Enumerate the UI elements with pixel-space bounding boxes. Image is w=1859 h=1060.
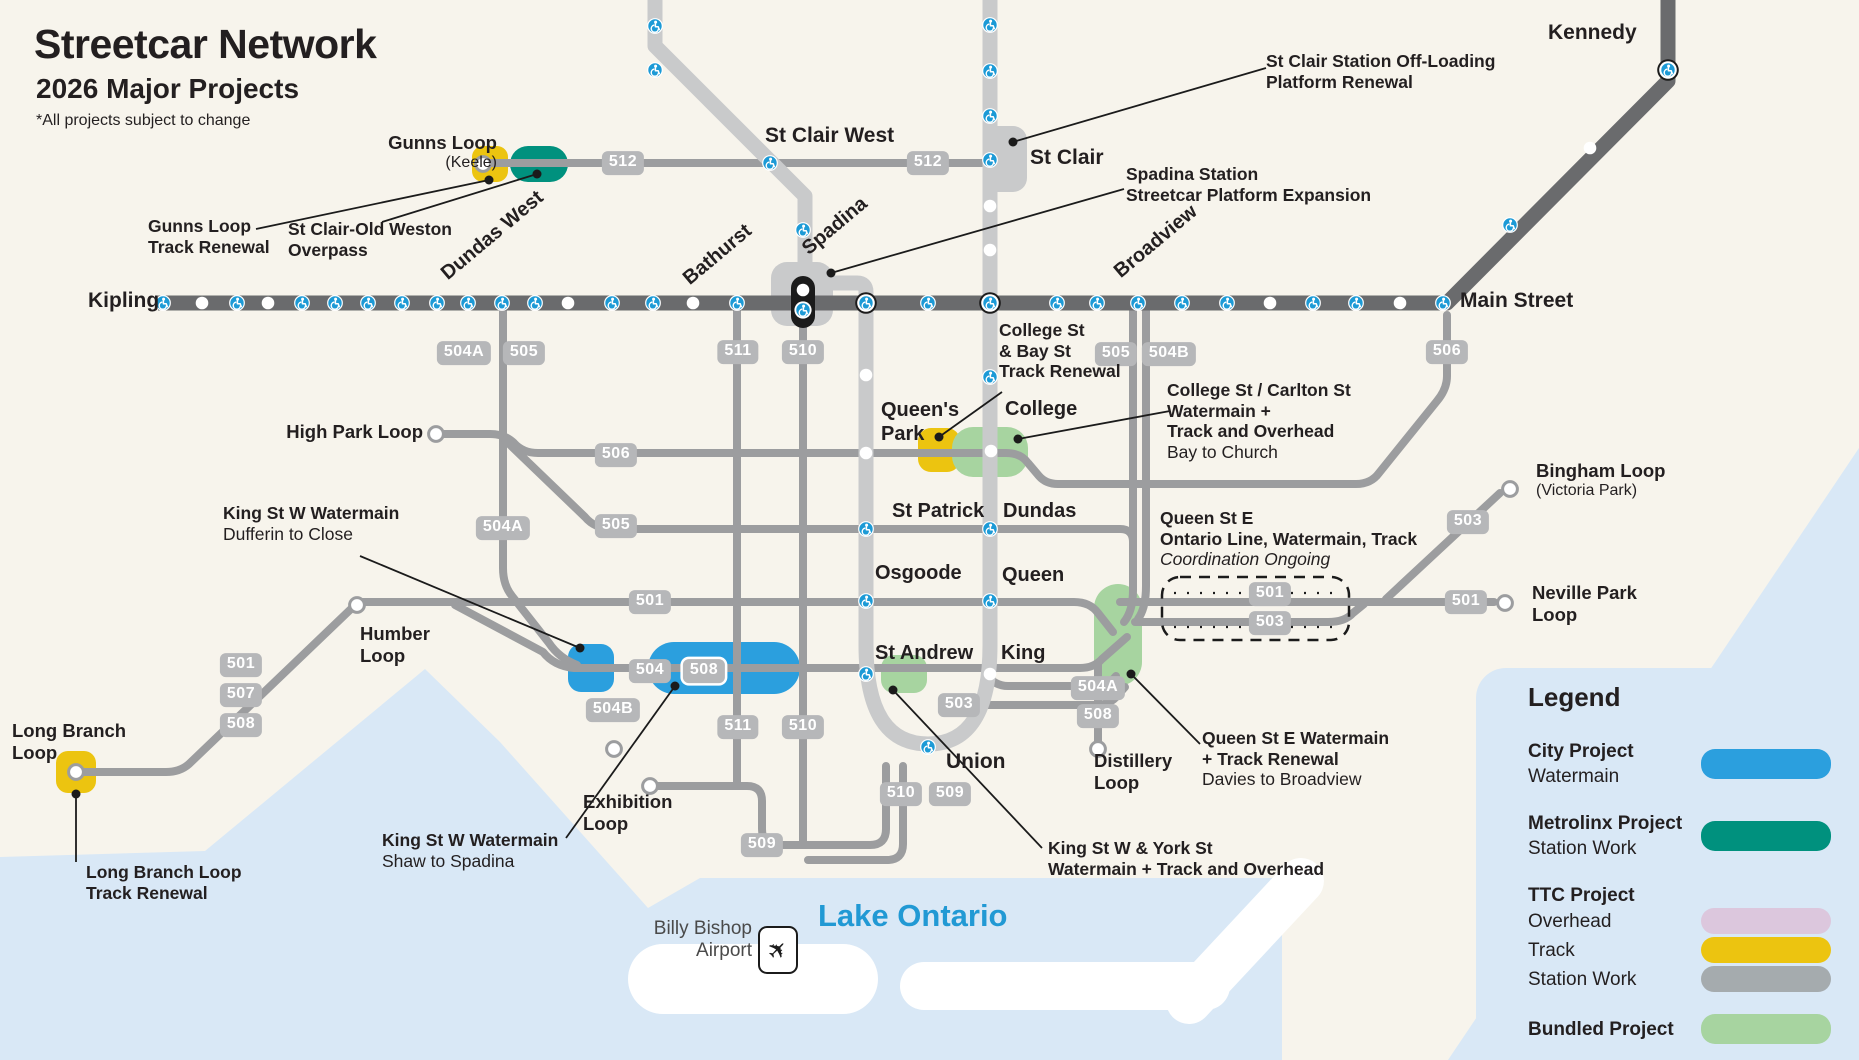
college-carlton-watermain-line-3: Bay to Church (1167, 442, 1351, 463)
badge-503-bingham: 503 (1447, 510, 1489, 534)
spadina-station-expansion-line-1: Streetcar Platform Expansion (1126, 185, 1371, 206)
badge-503-dashed: 503 (1249, 611, 1291, 635)
badge-504a-west: 504A (476, 516, 530, 540)
badge-511-north: 511 (717, 340, 758, 364)
king-label-line-0: King (1001, 642, 1045, 666)
badge-501-dashed: 501 (1249, 582, 1291, 606)
map-title: Streetcar Network (34, 20, 376, 68)
st-clair-offloading: St Clair Station Off-LoadingPlatform Ren… (1266, 51, 1495, 92)
badge-508-king: 508 (683, 659, 725, 683)
legend-bundled-project: Bundled Project (1528, 1017, 1674, 1042)
billy-bishop-label-line-1: Airport (654, 940, 752, 962)
st-clair-west-label-line-0: St Clair West (765, 124, 894, 149)
airport-icon: ✈ (758, 926, 798, 974)
union-label: Union (946, 750, 1005, 775)
college-bay-track-renewal-line-0: College St (999, 320, 1121, 341)
queen-label-line-0: Queen (1002, 564, 1064, 588)
college-bay-track-renewal: College St& Bay StTrack Renewal (999, 320, 1121, 382)
badge-508-lakeshore: 508 (220, 713, 262, 737)
map-title-line-0: Streetcar Network (34, 20, 376, 68)
gunns-loop-track-renewal-line-1: Track Renewal (148, 237, 270, 258)
legend-panel: Legend City Project Watermain Metrolinx … (1476, 668, 1859, 1060)
neville-park-loop-label: Neville ParkLoop (1532, 582, 1637, 626)
king-york-watermain: King St W & York StWatermain + Track and… (1048, 838, 1324, 879)
kipling-label: Kipling (88, 289, 159, 314)
dundas-label-line-0: Dundas (1003, 500, 1076, 524)
gunns-loop-label: Gunns Loop(Keele) (388, 132, 497, 173)
legend-metrolinx-project: Metrolinx Project Station Work (1528, 811, 1682, 861)
legend-title: Legend (1528, 682, 1831, 713)
king-w-watermain-dufferin-line-1: Dufferin to Close (223, 524, 399, 545)
long-branch-track-renewal-line-1: Track Renewal (86, 883, 242, 904)
legend-swatch-metrolinx (1701, 821, 1831, 851)
streetcar-network-map: Legend City Project Watermain Metrolinx … (0, 0, 1859, 1060)
humber-loop-label-line-1: Loop (360, 645, 430, 667)
gunns-loop-track-renewal: Gunns LoopTrack Renewal (148, 216, 270, 257)
kennedy-label: Kennedy (1548, 21, 1637, 46)
badge-505-west: 505 (595, 514, 637, 538)
osgoode-label: Osgoode (875, 562, 962, 586)
queen-label: Queen (1002, 564, 1064, 588)
queen-st-e-ontario-line-line-1: Ontario Line, Watermain, Track (1160, 529, 1417, 550)
badge-501-lakeshore: 501 (220, 653, 262, 677)
st-patrick-label-line-0: St Patrick (892, 500, 984, 524)
st-clair-offloading-line-1: Platform Renewal (1266, 72, 1495, 93)
distillery-loop-label-line-0: Distillery (1094, 750, 1172, 772)
badge-512-west: 512 (602, 151, 644, 175)
queens-park-label-line-0: Queen's (881, 399, 959, 423)
bingham-loop-label-line-1: (Victoria Park) (1536, 482, 1665, 501)
spadina-station-expansion-line-0: Spadina Station (1126, 164, 1371, 185)
badge-504b-east: 504B (1142, 342, 1196, 366)
queen-e-watermain-track-line-2: Davies to Broadview (1202, 769, 1389, 790)
exhibition-loop-label-line-0: Exhibition (583, 791, 672, 813)
dundas-label: Dundas (1003, 500, 1076, 524)
main-street-label: Main Street (1460, 289, 1573, 314)
neville-park-loop-label-line-0: Neville Park (1532, 582, 1637, 604)
humber-loop-label-line-0: Humber (360, 623, 430, 645)
college-carlton-watermain: College St / Carlton StWatermain +Track … (1167, 380, 1351, 463)
badge-503-king: 503 (938, 693, 980, 717)
st-clair-west-label: St Clair West (765, 124, 894, 149)
legend-swatch-station-work (1701, 966, 1831, 992)
king-w-watermain-shaw: King St W WatermainShaw to Spadina (382, 830, 558, 871)
badge-506-east: 506 (1426, 340, 1468, 364)
badge-501-neville: 501 (1445, 590, 1487, 614)
college-bay-track-renewal-line-1: & Bay St (999, 341, 1121, 362)
exhibition-loop-label-line-1: Loop (583, 813, 672, 835)
queen-e-watermain-track-line-0: Queen St E Watermain (1202, 728, 1389, 749)
kennedy-label-line-0: Kennedy (1548, 21, 1637, 46)
badge-509-west: 509 (741, 833, 783, 857)
distillery-loop-label: DistilleryLoop (1094, 750, 1172, 794)
subway-line-1 (655, 0, 990, 744)
badge-510-north: 510 (782, 340, 824, 364)
long-branch-track-renewal: Long Branch LoopTrack Renewal (86, 862, 242, 903)
spadina-station-expansion: Spadina StationStreetcar Platform Expans… (1126, 164, 1371, 205)
high-park-loop-label: High Park Loop (286, 421, 423, 443)
badge-512-east: 512 (907, 151, 949, 175)
map-subtitle: 2026 Major Projects (36, 72, 299, 105)
college-label-line-0: College (1005, 398, 1077, 422)
osgoode-label-line-0: Osgoode (875, 562, 962, 586)
st-clair-offloading-line-0: St Clair Station Off-Loading (1266, 51, 1495, 72)
map-note-line-0: *All projects subject to change (36, 112, 250, 131)
badge-508-distillery: 508 (1077, 704, 1119, 728)
long-branch-loop-label: Long BranchLoop (12, 720, 126, 764)
annotation-leaders (72, 68, 1267, 862)
college-carlton-watermain-line-1: Watermain + (1167, 401, 1351, 422)
long-branch-loop-label-line-1: Loop (12, 742, 126, 764)
st-clair-old-weston-overpass: St Clair-Old WestonOverpass (288, 219, 452, 260)
long-branch-track-renewal-line-0: Long Branch Loop (86, 862, 242, 883)
badge-504a-distillery: 504A (1071, 676, 1125, 700)
airplane-glyph: ✈ (761, 933, 796, 968)
legend-swatch-overhead (1701, 908, 1831, 934)
long-branch-loop-label-line-0: Long Branch (12, 720, 126, 742)
st-clair-label-line-0: St Clair (1030, 146, 1104, 171)
queen-st-e-ontario-line-line-2: Coordination Ongoing (1160, 549, 1417, 570)
gunns-loop-label-line-0: Gunns Loop (388, 132, 497, 154)
badge-504a-north: 504A (437, 341, 491, 365)
bingham-loop-label: Bingham Loop(Victoria Park) (1536, 460, 1665, 501)
college-bay-track-renewal-line-2: Track Renewal (999, 361, 1121, 382)
badge-510-union: 510 (880, 782, 922, 806)
king-label: King (1001, 642, 1045, 666)
badge-510-south: 510 (782, 715, 824, 739)
neville-park-loop-label-line-1: Loop (1532, 604, 1637, 626)
bingham-loop-label-line-0: Bingham Loop (1536, 460, 1665, 482)
badge-504-king: 504 (629, 659, 671, 683)
gunns-loop-label-line-1: (Keele) (388, 154, 497, 173)
legend-ttc-project: TTC Project Overhead Track Station Work (1528, 883, 1831, 992)
main-street-label-line-0: Main Street (1460, 289, 1573, 314)
exhibition-loop-label: ExhibitionLoop (583, 791, 672, 835)
line1-yonge-university (832, 0, 990, 744)
lake-ontario-label: Lake Ontario (818, 898, 1008, 935)
kipling-label-line-0: Kipling (88, 289, 159, 314)
king-w-watermain-shaw-line-0: King St W Watermain (382, 830, 558, 851)
badge-507-lakeshore: 507 (220, 683, 262, 707)
legend-swatch-bundled (1701, 1014, 1831, 1044)
king-york-watermain-line-1: Watermain + Track and Overhead (1048, 859, 1324, 880)
king-w-watermain-dufferin: King St W WatermainDufferin to Close (223, 503, 399, 544)
badge-501-queen: 501 (629, 590, 671, 614)
king-w-watermain-shaw-line-1: Shaw to Spadina (382, 851, 558, 872)
badge-504b-south: 504B (586, 698, 640, 722)
st-clair-old-weston-overpass-line-0: St Clair-Old Weston (288, 219, 452, 240)
queens-park-label: Queen'sPark (881, 399, 959, 446)
lake-ontario-label-line-0: Lake Ontario (818, 898, 1008, 935)
queen-st-e-ontario-line-line-0: Queen St E (1160, 508, 1417, 529)
st-andrew-label: St Andrew (875, 642, 973, 666)
college-label: College (1005, 398, 1077, 422)
king-w-watermain-dufferin-line-0: King St W Watermain (223, 503, 399, 524)
queen-st-e-ontario-line: Queen St EOntario Line, Watermain, Track… (1160, 508, 1417, 570)
badge-509-union: 509 (929, 782, 971, 806)
college-carlton-watermain-line-0: College St / Carlton St (1167, 380, 1351, 401)
st-clair-label: St Clair (1030, 146, 1104, 171)
college-carlton-watermain-line-2: Track and Overhead (1167, 421, 1351, 442)
st-clair-old-weston-overpass-line-1: Overpass (288, 240, 452, 261)
high-park-loop-label-line-0: High Park Loop (286, 421, 423, 443)
badge-506-west: 506 (595, 443, 637, 467)
badge-505-north: 505 (503, 341, 545, 365)
map-subtitle-line-0: 2026 Major Projects (36, 72, 299, 105)
queen-e-watermain-track: Queen St E Watermain+ Track RenewalDavie… (1202, 728, 1389, 790)
map-note: *All projects subject to change (36, 112, 250, 131)
st-patrick-label: St Patrick (892, 500, 984, 524)
humber-loop-label: HumberLoop (360, 623, 430, 667)
queen-e-watermain-track-line-1: + Track Renewal (1202, 749, 1389, 770)
distillery-loop-label-line-1: Loop (1094, 772, 1172, 794)
gunns-loop-track-renewal-line-0: Gunns Loop (148, 216, 270, 237)
union-label-line-0: Union (946, 750, 1005, 775)
queens-park-label-line-1: Park (881, 423, 959, 447)
legend-swatch-watermain (1701, 749, 1831, 779)
billy-bishop-label: Billy BishopAirport (654, 918, 752, 963)
st-andrew-label-line-0: St Andrew (875, 642, 973, 666)
king-york-watermain-line-0: King St W & York St (1048, 838, 1324, 859)
badge-511-south: 511 (717, 715, 758, 739)
billy-bishop-label-line-0: Billy Bishop (654, 918, 752, 940)
legend-city-project: City Project Watermain (1528, 739, 1634, 789)
legend-swatch-track (1701, 937, 1831, 963)
